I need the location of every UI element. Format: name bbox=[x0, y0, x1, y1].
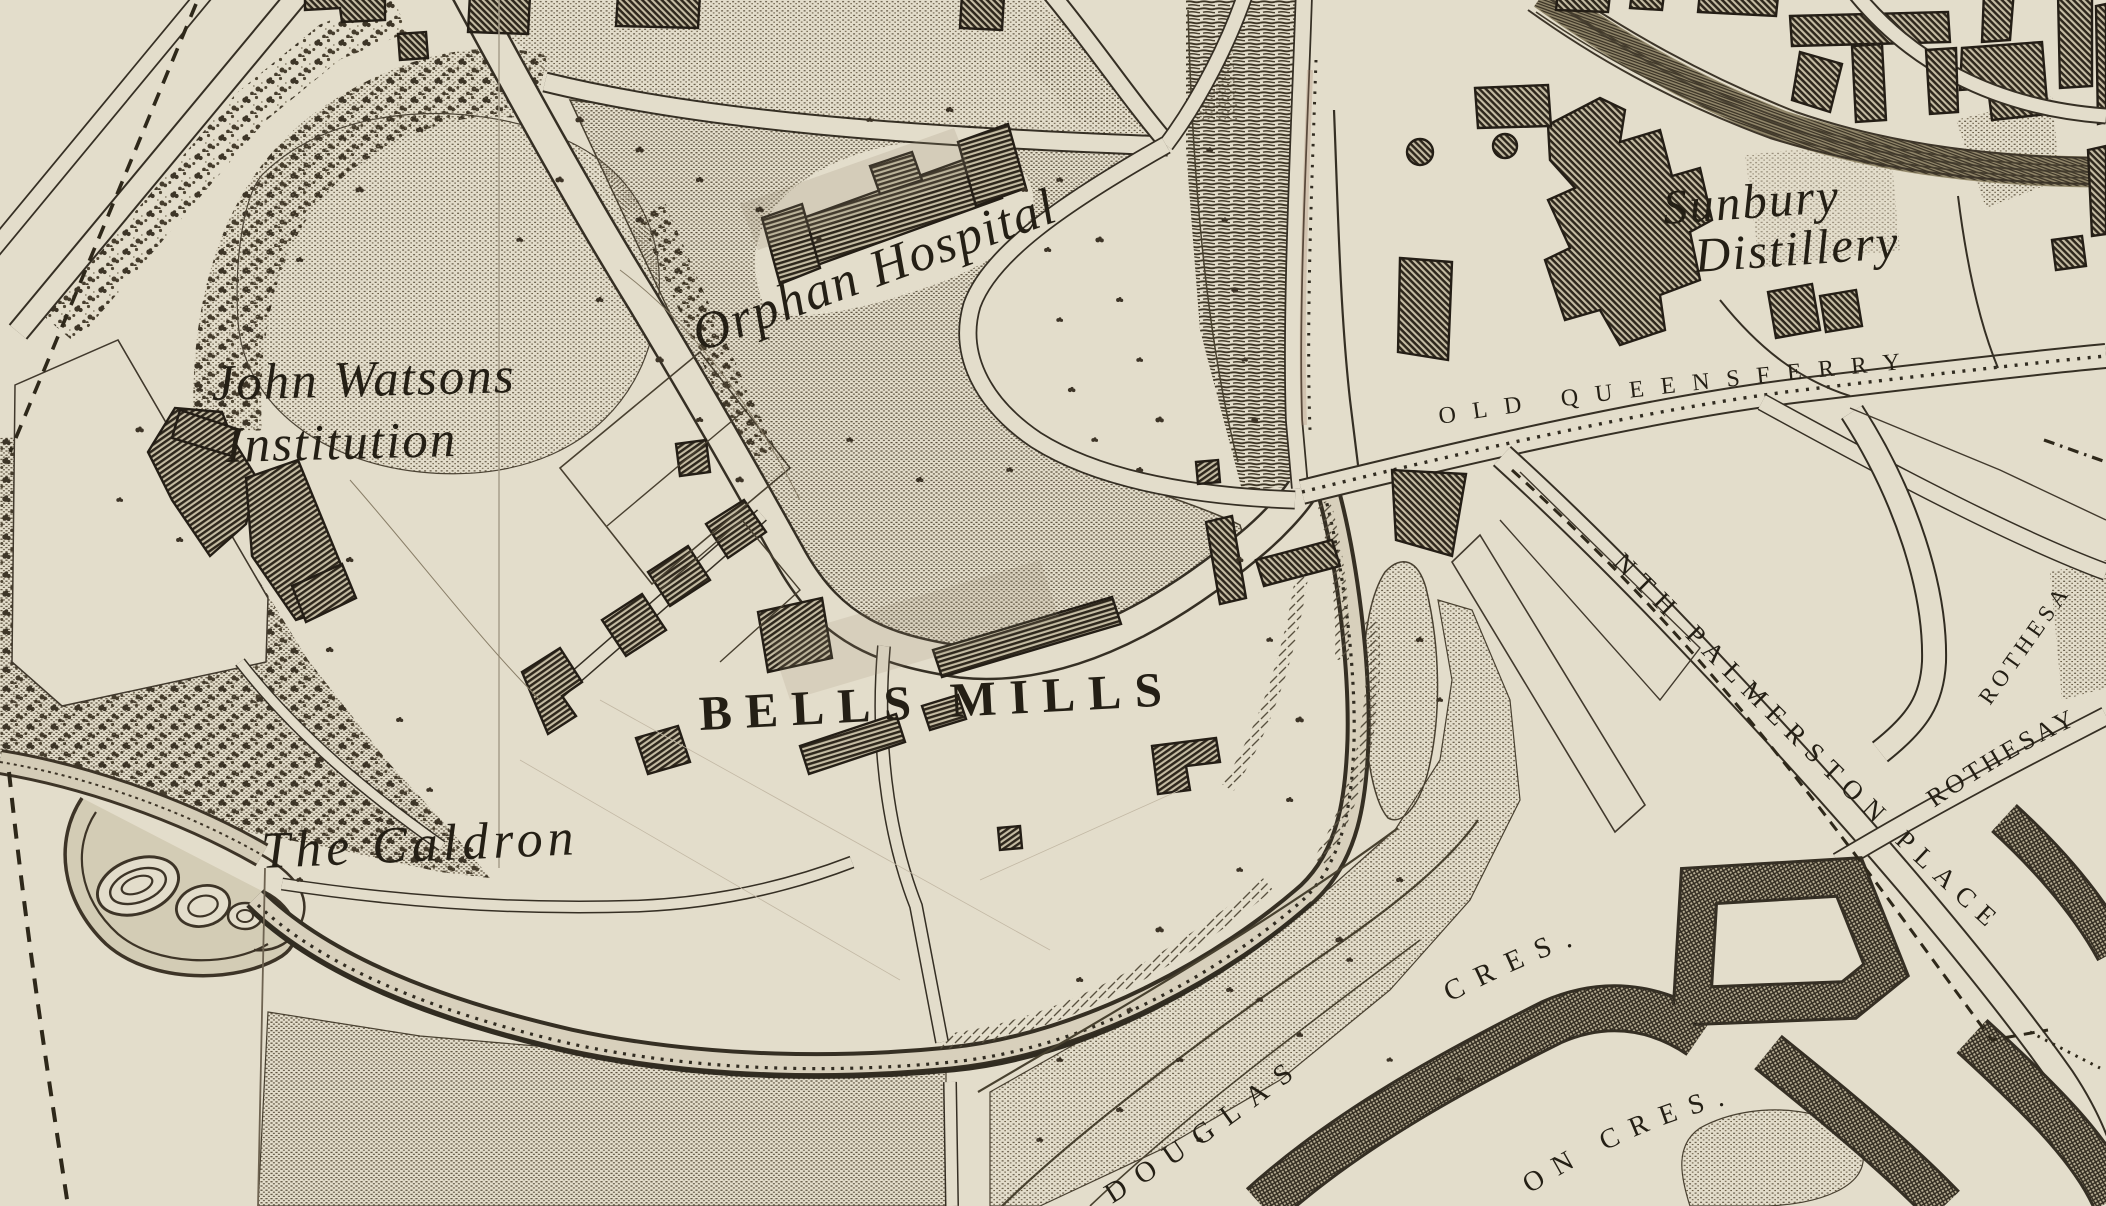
svg-text:John Watsons: John Watsons bbox=[211, 348, 516, 412]
svg-text:Institution: Institution bbox=[224, 412, 458, 474]
